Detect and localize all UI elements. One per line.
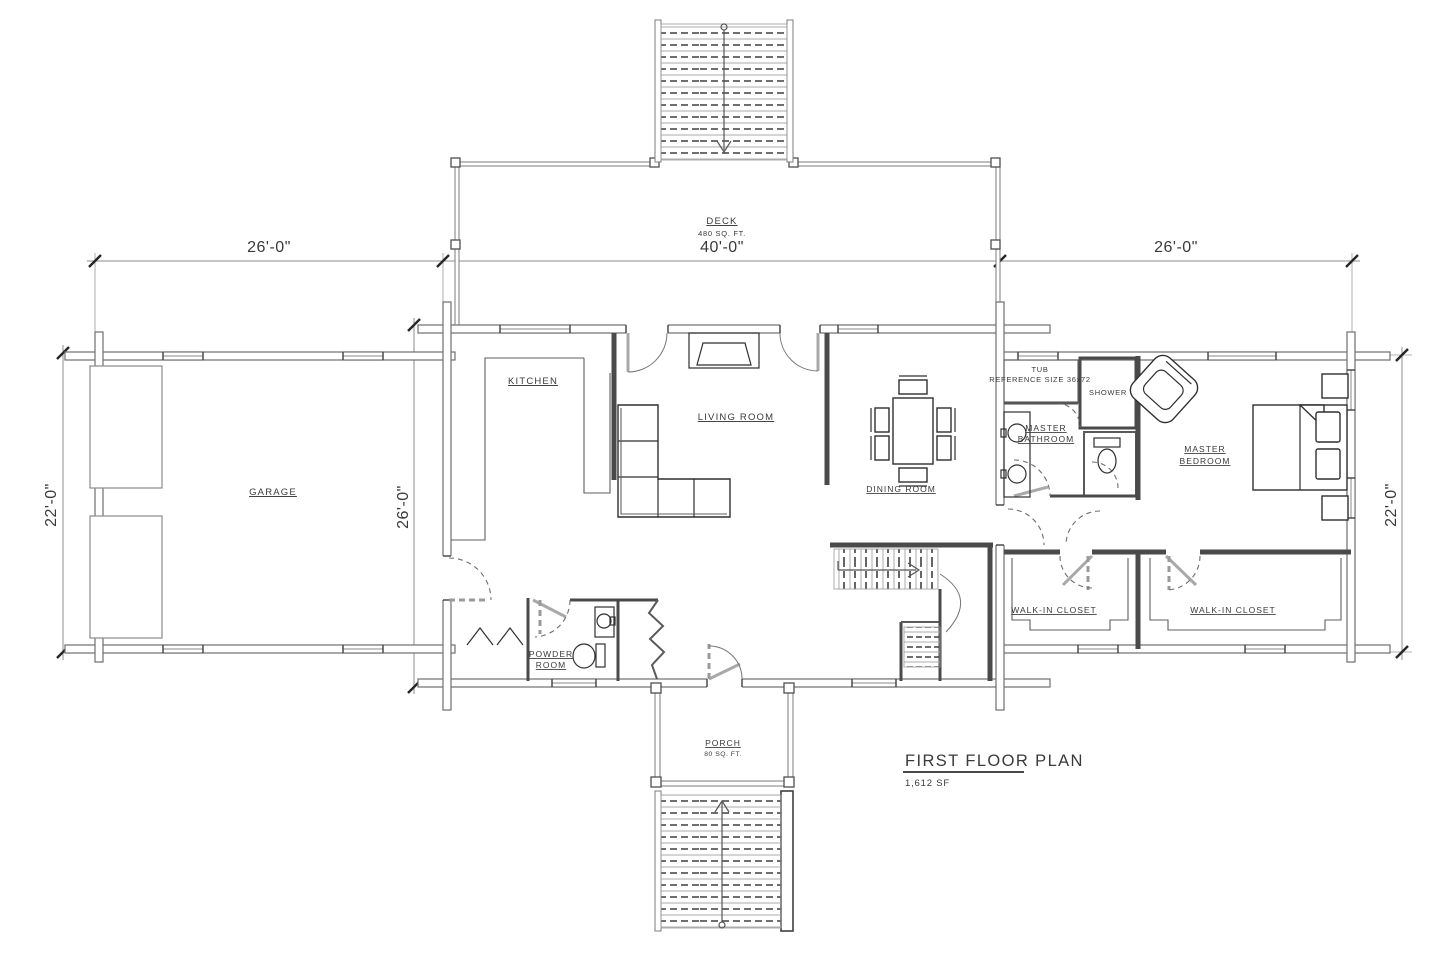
window bbox=[552, 679, 596, 687]
nightstand bbox=[1322, 496, 1348, 520]
master-bathroom-label-line2: BATHROOM bbox=[1018, 434, 1074, 444]
powder-room-label-line2: ROOM bbox=[536, 660, 566, 670]
dim-top-left: 26'-0" bbox=[247, 239, 291, 256]
powder-sink bbox=[597, 614, 611, 628]
toilet-tank bbox=[1094, 438, 1120, 447]
porch-stairs bbox=[655, 791, 793, 931]
title-block: FIRST FLOOR PLAN 1,612 SF bbox=[903, 752, 1084, 789]
deck-area-label: 480 SQ. FT. bbox=[698, 229, 746, 238]
bifold-door bbox=[467, 628, 493, 645]
window bbox=[163, 645, 203, 653]
window bbox=[343, 645, 383, 653]
dim-top-right: 26'-0" bbox=[1154, 239, 1198, 256]
fireplace bbox=[689, 333, 759, 368]
tub-label-line1: TUB bbox=[1031, 365, 1048, 374]
window bbox=[1208, 352, 1276, 360]
toilet bbox=[1098, 449, 1116, 473]
dining-chair bbox=[937, 436, 951, 460]
first-floor-plan-drawing: 26'-0" 40'-0" 26'-0" 22'-0" 26'-0" 22'-0… bbox=[0, 0, 1445, 969]
porch: PORCH 80 SQ. FT. bbox=[651, 683, 794, 787]
dim-left: 22'-0" bbox=[43, 483, 60, 527]
deck-stairs bbox=[655, 20, 793, 162]
dining-room-label: DINING ROOM bbox=[866, 484, 936, 494]
walk-in-closet-left-label: WALK-IN CLOSET bbox=[1011, 605, 1096, 615]
tub-label-line2: REFERENCE SIZE 36x72 bbox=[989, 375, 1091, 384]
dining-chair bbox=[899, 468, 927, 482]
vanity-sink bbox=[1008, 465, 1026, 483]
plan-total-area: 1,612 SF bbox=[905, 778, 950, 789]
dining-chair bbox=[875, 408, 889, 432]
pillow bbox=[1316, 412, 1340, 442]
powder-toilet bbox=[573, 644, 595, 668]
floor-plan-canvas: 26'-0" 40'-0" 26'-0" 22'-0" 26'-0" 22'-0… bbox=[0, 0, 1445, 969]
pillow bbox=[1316, 449, 1340, 479]
deck-label: DECK bbox=[706, 216, 737, 227]
porch-area-label: 80 SQ. FT. bbox=[704, 751, 741, 758]
window bbox=[838, 325, 878, 333]
porch-label: PORCH bbox=[705, 738, 741, 748]
master-bedroom-label-line2: BEDROOM bbox=[1180, 456, 1231, 466]
shower-label: SHOWER bbox=[1089, 388, 1127, 397]
dining-chair bbox=[899, 380, 927, 394]
dimension-lines: 26'-0" 40'-0" 26'-0" 22'-0" 26'-0" 22'-0… bbox=[43, 239, 1412, 694]
toilet-room-walls bbox=[1084, 432, 1136, 496]
window bbox=[163, 352, 203, 360]
dining-chair bbox=[937, 408, 951, 432]
window bbox=[852, 679, 896, 687]
dining-table bbox=[893, 398, 933, 464]
interior-stairs bbox=[834, 549, 961, 667]
nightstand bbox=[1322, 374, 1348, 398]
kitchen-label: KITCHEN bbox=[508, 376, 558, 387]
dim-right: 22'-0" bbox=[1383, 483, 1400, 527]
master-bedroom-furniture bbox=[1126, 351, 1348, 520]
dim-top-center: 40'-0" bbox=[700, 239, 744, 256]
master-bathroom-label-line1: MASTER bbox=[1025, 423, 1066, 433]
window bbox=[1078, 645, 1118, 653]
plan-title: FIRST FLOOR PLAN bbox=[905, 752, 1084, 770]
bifold-door bbox=[497, 628, 523, 645]
dim-center: 26'-0" bbox=[395, 485, 412, 529]
living-room-label: LIVING ROOM bbox=[698, 412, 775, 423]
powder-toilet-tank bbox=[596, 644, 605, 667]
walk-in-closet-right-label: WALK-IN CLOSET bbox=[1190, 605, 1275, 615]
window bbox=[343, 352, 383, 360]
garage-label: GARAGE bbox=[249, 487, 297, 498]
window bbox=[1018, 352, 1058, 360]
window bbox=[1245, 645, 1285, 653]
dining-chair bbox=[875, 436, 889, 460]
powder-room-fixtures bbox=[573, 607, 615, 668]
closet-shelf-line bbox=[1012, 558, 1128, 630]
powder-room-label-line1: POWDER bbox=[529, 649, 573, 659]
dining-set bbox=[871, 376, 955, 486]
window bbox=[500, 325, 570, 333]
master-bedroom-label-line1: MASTER bbox=[1184, 444, 1225, 454]
